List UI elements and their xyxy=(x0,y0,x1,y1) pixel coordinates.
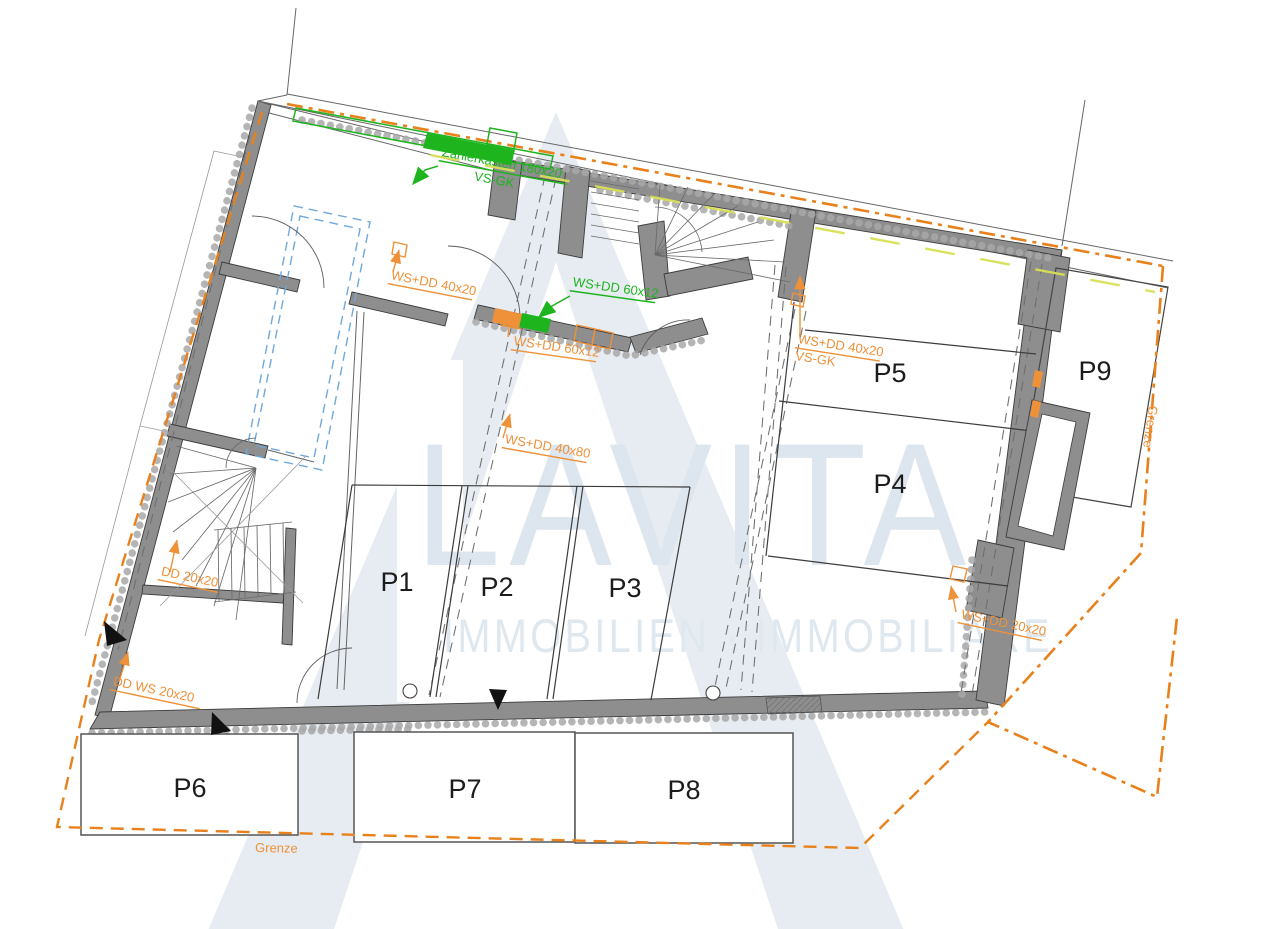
stair-rail xyxy=(214,522,292,530)
annotation-text: DD WS 20x20 xyxy=(112,673,196,705)
annotation-wsdd-40x20-p5: WS+DD 40x20 VS-GK xyxy=(792,331,884,376)
insulation-patch xyxy=(302,729,416,731)
wall-left xyxy=(95,101,271,719)
shaft-blue-dashed xyxy=(246,206,370,470)
floor-drain xyxy=(403,684,417,698)
stair-tread xyxy=(257,526,258,596)
stair-tread xyxy=(244,527,245,597)
drain-grate xyxy=(766,696,822,714)
label-p1: P1 xyxy=(380,567,413,597)
stairwell-wall-mid-h xyxy=(664,257,753,296)
label-p7: P7 xyxy=(448,774,481,804)
label-p9: P9 xyxy=(1078,356,1111,386)
floor-drain xyxy=(706,686,720,700)
stair-tread xyxy=(283,523,284,592)
street-edge-cap xyxy=(258,95,287,101)
label-p5: P5 xyxy=(873,358,906,388)
grenze-label-right: Grenze xyxy=(1140,405,1161,449)
stair-tread xyxy=(270,524,271,594)
street-right-edge-line xyxy=(1062,100,1085,246)
green-leader-arrow xyxy=(413,166,438,184)
stair-tread xyxy=(655,240,774,255)
blue-dashed-outline xyxy=(246,206,370,470)
label-p3: P3 xyxy=(608,573,641,603)
floor-plan-svg: LAVITA IMMOBILIEN · IMMOBILIARE xyxy=(0,0,1280,929)
stair-tread xyxy=(591,203,639,211)
annotation-dd-ws-20x20: DD WS 20x20 xyxy=(110,673,204,709)
street-edge-line xyxy=(287,8,296,95)
stair-tread xyxy=(214,468,256,606)
wall-corner-block xyxy=(1018,250,1070,332)
annotation-wsdd-40x20-top: WS+DD 40x20 xyxy=(388,267,478,301)
grenze-label-bottom: Grenze xyxy=(255,840,298,856)
floor-plan-page: LAVITA IMMOBILIEN · IMMOBILIARE xyxy=(0,0,1280,929)
stair-tread xyxy=(655,206,738,255)
label-p6: P6 xyxy=(173,773,206,803)
stair-tread xyxy=(173,468,256,532)
stair-tread xyxy=(182,468,256,560)
blue-dashed-outline-inner xyxy=(254,216,360,458)
orange-wall-box xyxy=(392,242,407,257)
label-p2: P2 xyxy=(480,572,513,602)
stairwell-wall-right xyxy=(778,206,816,302)
annotation-text: WS+DD 40x20 xyxy=(390,267,478,298)
stair-tread xyxy=(231,528,232,599)
label-p8: P8 xyxy=(667,775,700,805)
insulation-top xyxy=(302,120,1054,259)
label-p4: P4 xyxy=(873,469,906,499)
street-top-line xyxy=(287,94,1173,261)
boundary-top xyxy=(287,104,1163,266)
